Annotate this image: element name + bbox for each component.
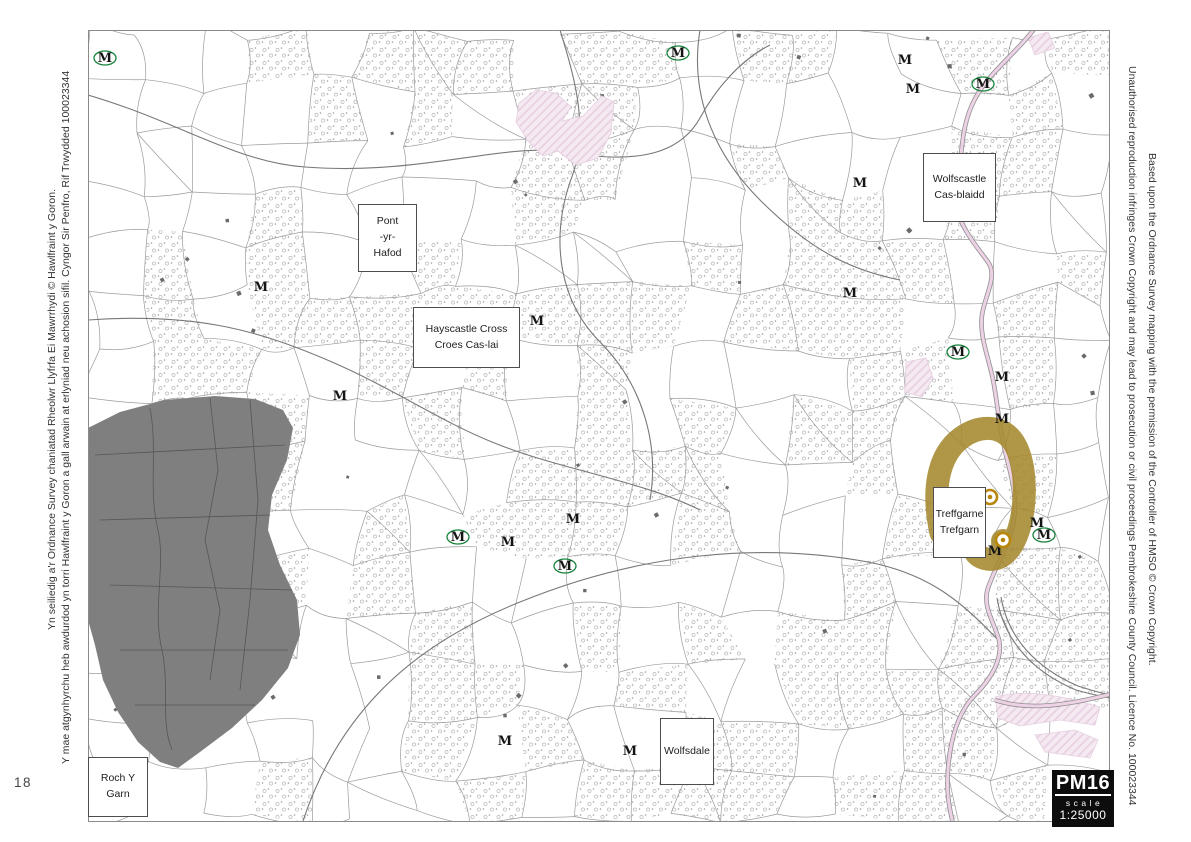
monument-marker: M [843, 286, 857, 301]
monument-marker: M [566, 512, 580, 527]
map-canvas: MMMMMMMMMMMMMMMMMMMMMM [0, 0, 1191, 842]
heritage-site-icon [983, 490, 997, 504]
monument-icon: M [98, 51, 112, 66]
monument-icon: M [976, 77, 990, 92]
monument-icon: M [898, 53, 912, 68]
monument-icon: M [530, 314, 544, 329]
monument-marker: M [254, 280, 268, 295]
copyright-welsh-line-2: Y mae atgynhyrchu heb awdurdod yn torri … [60, 71, 72, 764]
monument-icon: M [451, 530, 465, 545]
monument-icon: M [671, 46, 685, 61]
monument-icon: M [254, 280, 268, 295]
monument-marker: M [333, 389, 347, 404]
monument-icon: M [853, 176, 867, 191]
monument-marker: M [995, 370, 1009, 385]
monument-icon: M [501, 535, 515, 550]
monument-icon: M [843, 286, 857, 301]
monument-icon: M [333, 389, 347, 404]
monument-marker: M [94, 51, 116, 66]
monument-icon: M [1037, 528, 1051, 543]
copyright-english-line-1: Based upon the Ordnance Survey mapping w… [1146, 153, 1158, 666]
monument-icon: M [995, 370, 1009, 385]
scale-value: 1:25000 [1052, 809, 1114, 822]
monument-marker: M [1033, 528, 1055, 543]
monument-icon: M [906, 82, 920, 97]
map-content: MMMMMMMMMMMMMMMMMMMMMM [75, 17, 1122, 834]
access-land-area [88, 396, 300, 768]
monument-icon: M [995, 412, 1009, 427]
copyright-welsh-line-1: Yn seiliedig a'r Ordnance Survey chaniat… [46, 189, 58, 630]
monument-icon: M [558, 559, 572, 574]
copyright-english-line-2: Unauthorised reproduction infringes Crow… [1126, 66, 1138, 806]
map-sheet-badge: PM16 scale 1:25000 [1052, 770, 1114, 827]
monument-marker: M [623, 744, 637, 759]
monument-icon: M [951, 345, 965, 360]
heritage-site-icon [996, 533, 1010, 547]
monument-marker: M [853, 176, 867, 191]
monument-marker: M [995, 412, 1009, 427]
monument-marker: M [554, 559, 576, 574]
monument-marker: M [947, 345, 969, 360]
monument-marker: M [906, 82, 920, 97]
monument-marker: M [667, 46, 689, 61]
monument-icon: M [498, 734, 512, 749]
monument-icon: M [566, 512, 580, 527]
monument-marker: M [447, 530, 469, 545]
page-number: 18 [14, 775, 32, 790]
monument-marker: M [530, 314, 544, 329]
monument-marker: M [498, 734, 512, 749]
sheet-code: PM16 [1055, 773, 1111, 796]
monument-icon: M [623, 744, 637, 759]
page: MMMMMMMMMMMMMMMMMMMMMM Pont-yr-HafodHays… [0, 0, 1191, 842]
monument-marker: M [501, 535, 515, 550]
monument-marker: M [898, 53, 912, 68]
